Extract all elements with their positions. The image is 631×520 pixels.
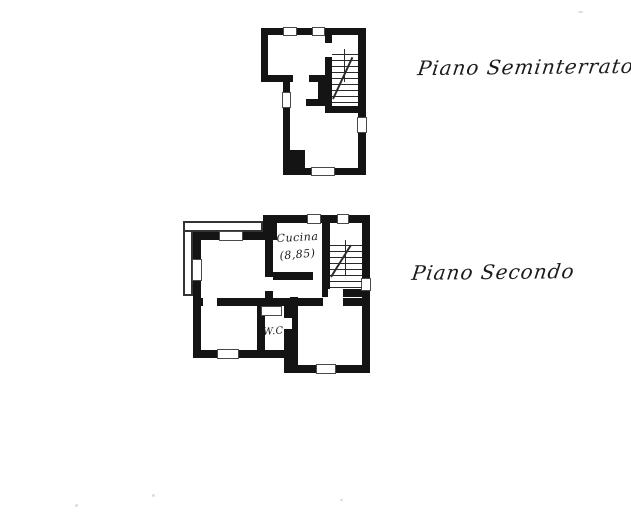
window — [312, 27, 325, 36]
window — [283, 27, 297, 36]
window — [307, 214, 321, 224]
wall — [193, 350, 290, 358]
door-opening — [328, 289, 343, 297]
room-label-cucina: Cucina — [273, 230, 323, 246]
scan-speck — [340, 499, 343, 501]
floor-plan-sheet: Cucina (8,85) W.C. Piano Seminterrato Pi… — [0, 0, 631, 520]
room-label-wc: W.C. — [259, 325, 292, 338]
stair-treads — [332, 49, 358, 106]
window — [337, 214, 349, 224]
window — [217, 349, 239, 359]
door-opening — [323, 298, 343, 306]
window — [357, 117, 367, 133]
wall — [325, 106, 366, 113]
floor-label-seminterrato: Piano Seminterrato — [416, 54, 631, 80]
window — [192, 259, 202, 281]
window — [311, 167, 335, 176]
door-opening — [265, 277, 273, 291]
scan-speck — [75, 504, 78, 507]
wc-door — [261, 306, 282, 316]
scan-speck — [152, 494, 155, 497]
scan-speck — [578, 11, 583, 13]
window — [219, 231, 243, 241]
door-opening — [325, 43, 332, 57]
stair-center-line — [345, 240, 346, 275]
room-area-cucina: (8,85) — [273, 246, 323, 263]
door-opening — [293, 75, 309, 82]
door-opening — [203, 298, 217, 306]
wall — [193, 298, 370, 306]
window — [361, 278, 371, 291]
wall — [322, 223, 330, 297]
wall — [193, 232, 201, 358]
wall — [261, 28, 268, 82]
stair-treads — [330, 240, 362, 290]
floor-label-secondo: Piano Secondo — [410, 259, 576, 285]
window — [316, 364, 336, 374]
wall-step — [283, 150, 305, 175]
window — [282, 92, 291, 108]
door-opening — [313, 272, 322, 280]
wall — [325, 28, 332, 113]
wall — [358, 28, 366, 175]
